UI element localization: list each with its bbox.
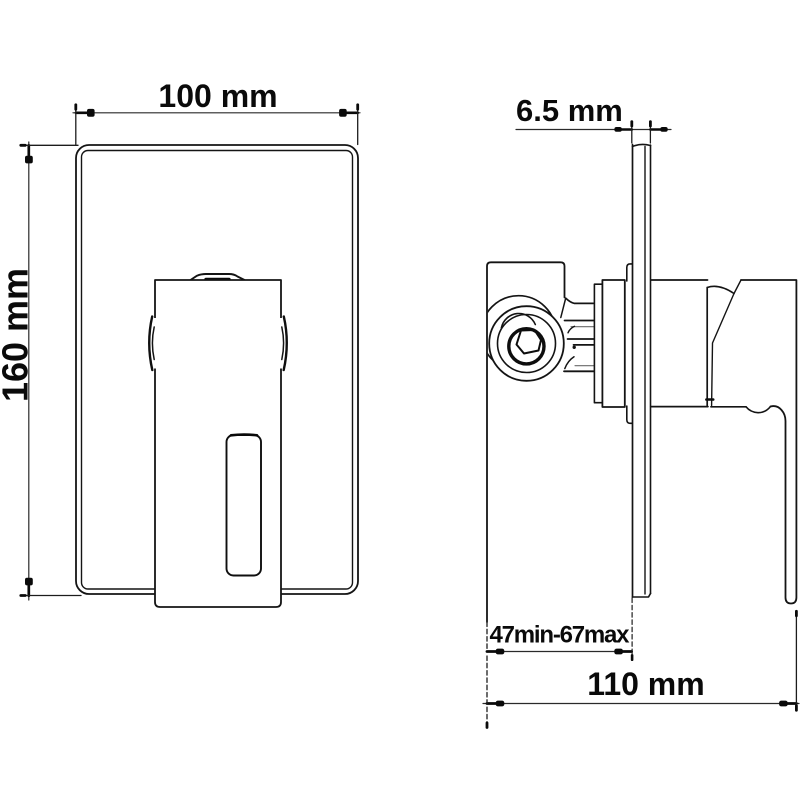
svg-text:110 mm: 110 mm bbox=[587, 666, 704, 702]
svg-text:6.5 mm: 6.5 mm bbox=[516, 93, 623, 128]
svg-text:100 mm: 100 mm bbox=[158, 78, 277, 114]
svg-text:160 mm: 160 mm bbox=[0, 268, 35, 402]
svg-text:47min-67max: 47min-67max bbox=[490, 622, 631, 649]
